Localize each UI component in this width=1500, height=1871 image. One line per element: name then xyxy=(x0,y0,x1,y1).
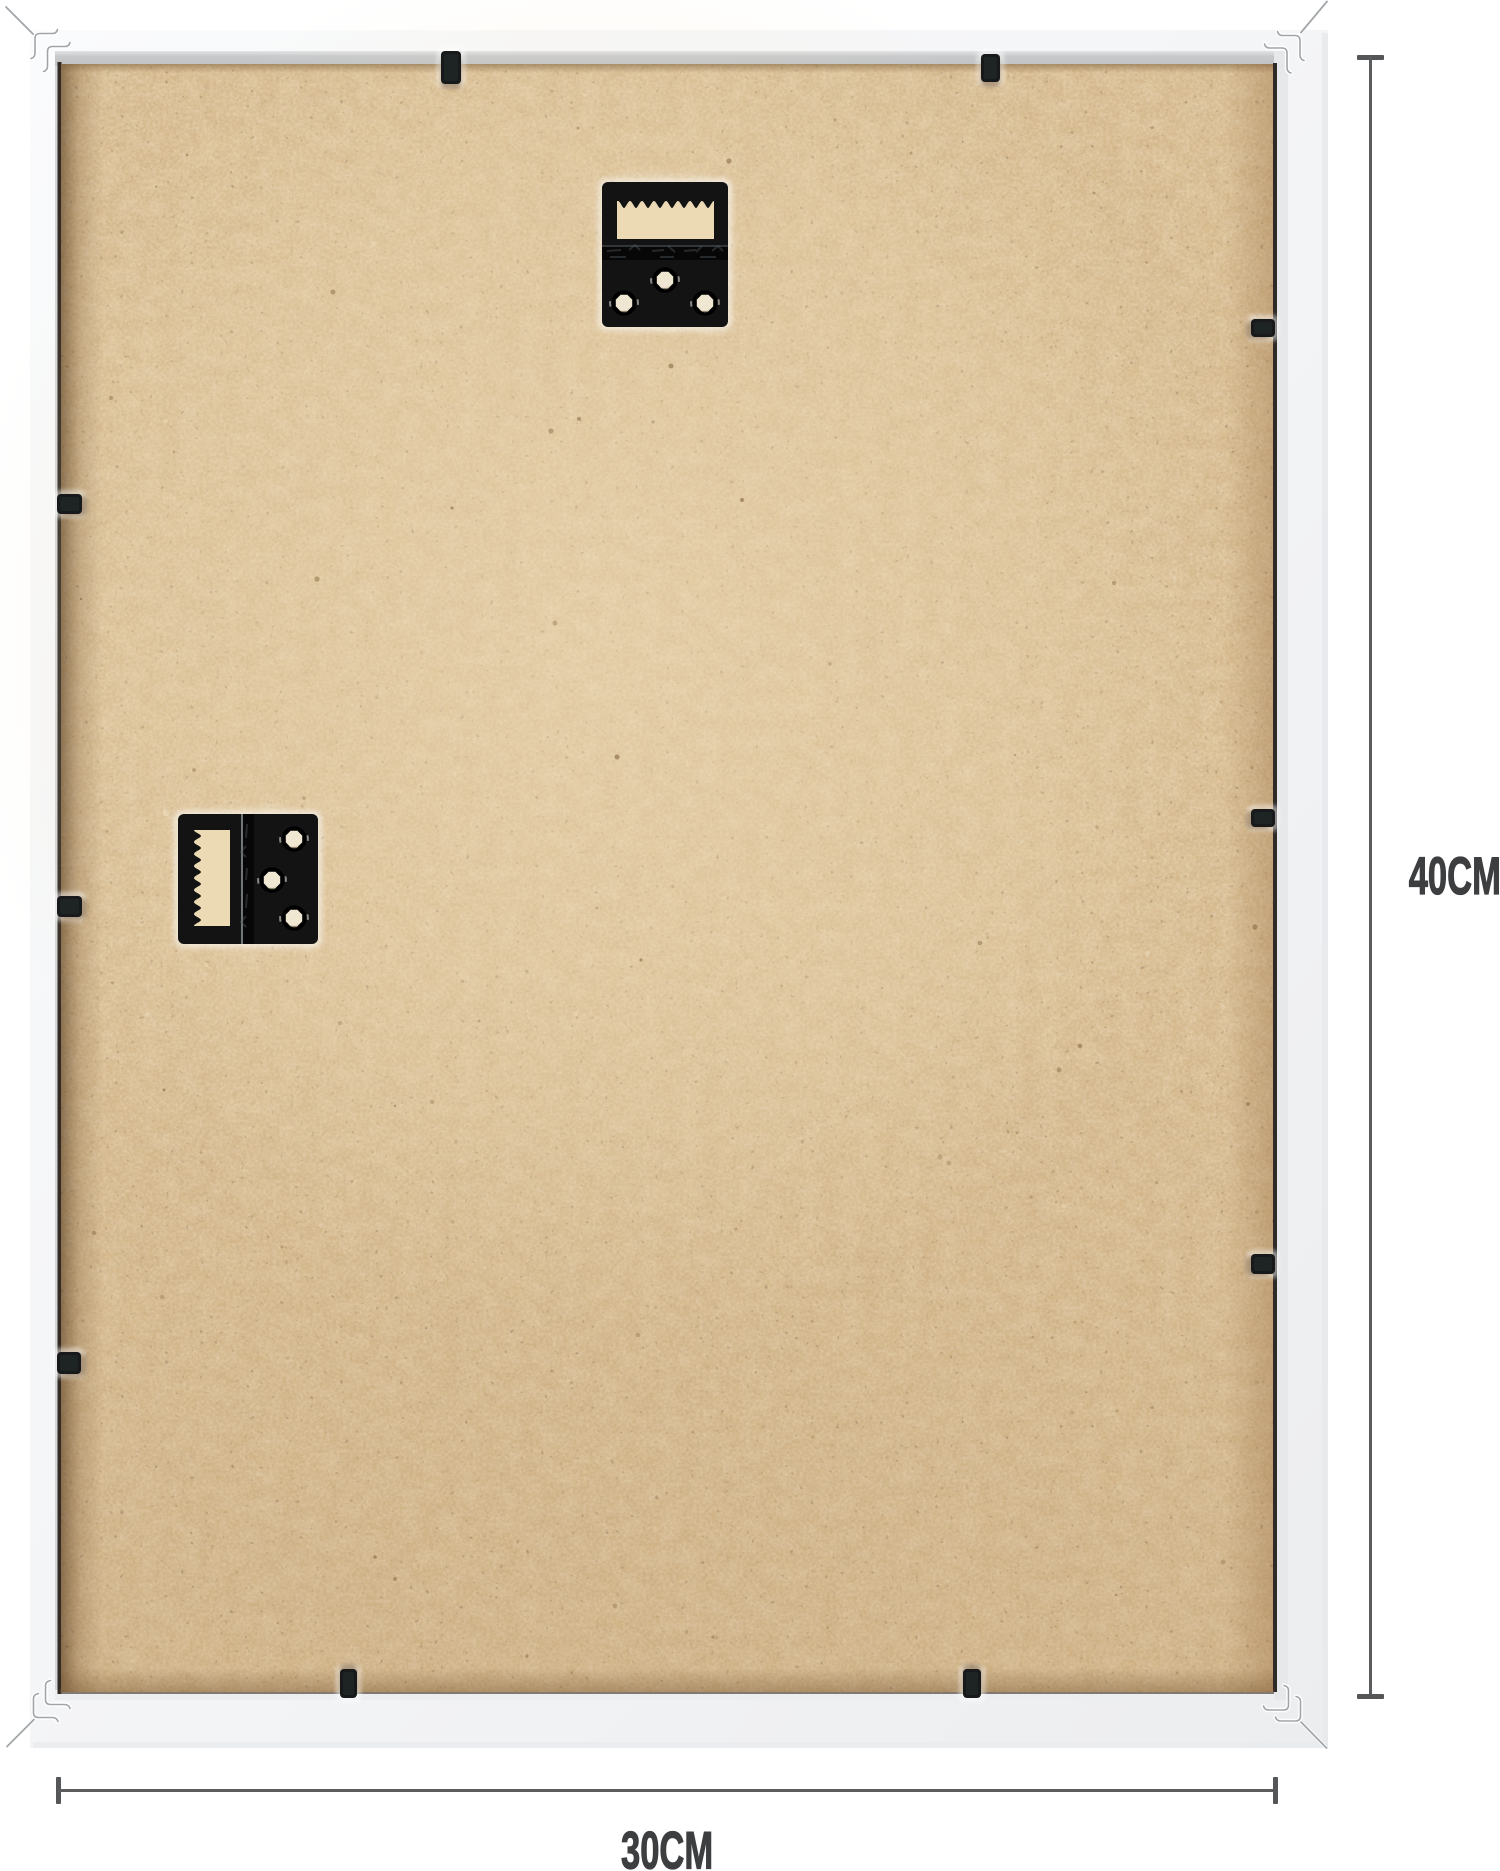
svg-text:40CM: 40CM xyxy=(1409,848,1500,906)
svg-text:30CM: 30CM xyxy=(621,1822,713,1871)
